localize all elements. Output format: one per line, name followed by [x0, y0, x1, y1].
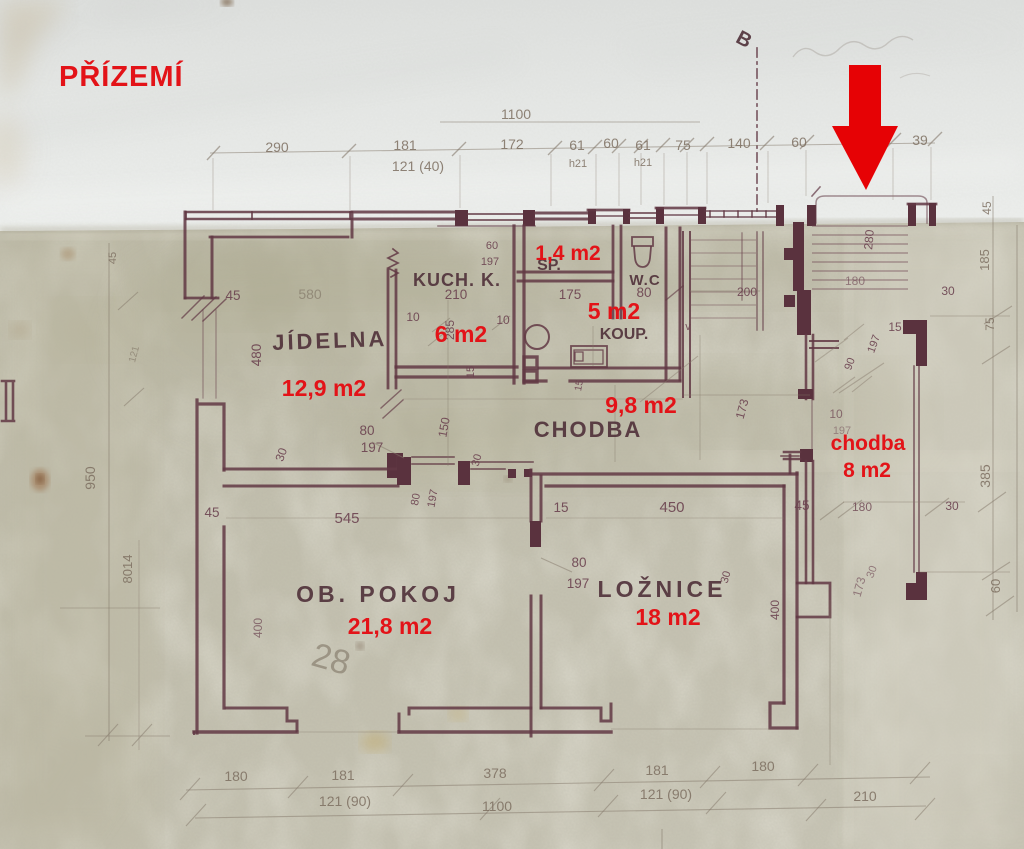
- svg-text:39: 39: [912, 132, 928, 148]
- svg-text:181: 181: [393, 137, 417, 153]
- svg-text:80: 80: [359, 423, 374, 438]
- svg-text:180: 180: [751, 758, 775, 774]
- svg-text:9,8 m2: 9,8 m2: [605, 392, 677, 418]
- svg-text:chodba: chodba: [831, 432, 906, 455]
- svg-text:60: 60: [603, 135, 619, 151]
- svg-text:385: 385: [977, 464, 993, 488]
- svg-text:21,8 m2: 21,8 m2: [348, 613, 432, 639]
- svg-text:61: 61: [635, 137, 651, 153]
- svg-text:CHODBA: CHODBA: [534, 417, 643, 442]
- svg-text:480: 480: [249, 344, 264, 367]
- svg-text:60: 60: [486, 240, 498, 252]
- svg-text:JÍDELNA: JÍDELNA: [272, 326, 388, 355]
- svg-text:200: 200: [737, 285, 757, 299]
- svg-text:180: 180: [224, 768, 248, 784]
- svg-text:61: 61: [569, 137, 585, 153]
- svg-text:30: 30: [941, 284, 955, 298]
- svg-text:45: 45: [980, 201, 994, 215]
- svg-text:400: 400: [251, 618, 265, 638]
- svg-text:PŘÍZEMÍ: PŘÍZEMÍ: [59, 59, 184, 93]
- svg-text:121 (40): 121 (40): [392, 158, 444, 174]
- svg-text:10: 10: [406, 310, 420, 324]
- svg-text:15: 15: [888, 320, 902, 334]
- svg-text:45: 45: [204, 505, 219, 520]
- svg-text:545: 545: [334, 510, 359, 527]
- svg-text:175: 175: [559, 287, 582, 302]
- svg-text:185: 185: [977, 249, 992, 271]
- svg-text:950: 950: [82, 466, 98, 490]
- svg-text:80: 80: [409, 492, 423, 506]
- svg-text:LOŽNICE: LOŽNICE: [598, 575, 727, 602]
- svg-text:75: 75: [983, 317, 997, 331]
- svg-text:197: 197: [361, 440, 384, 455]
- svg-text:12,9 m2: 12,9 m2: [282, 375, 366, 401]
- svg-text:180: 180: [852, 500, 872, 514]
- svg-text:45: 45: [794, 498, 809, 513]
- svg-text:8 m2: 8 m2: [843, 459, 891, 482]
- svg-text:60: 60: [988, 579, 1003, 593]
- svg-text:75: 75: [675, 137, 691, 153]
- svg-text:378: 378: [483, 765, 507, 781]
- svg-text:KUCH. K.: KUCH. K.: [413, 270, 501, 290]
- svg-text:180: 180: [845, 274, 865, 288]
- svg-text:580: 580: [298, 286, 322, 302]
- svg-text:5 m2: 5 m2: [588, 298, 640, 324]
- svg-text:140: 140: [727, 135, 751, 151]
- svg-text:450: 450: [659, 499, 684, 516]
- svg-text:30: 30: [945, 499, 959, 513]
- svg-text:15: 15: [465, 366, 477, 378]
- svg-text:121 (90): 121 (90): [640, 786, 692, 802]
- svg-text:18 m2: 18 m2: [635, 604, 700, 630]
- svg-text:6 m2: 6 m2: [435, 321, 487, 347]
- svg-text:h21: h21: [634, 157, 652, 169]
- svg-text:210: 210: [853, 788, 877, 804]
- svg-text:1,4 m2: 1,4 m2: [535, 242, 600, 265]
- svg-text:1100: 1100: [501, 106, 531, 122]
- svg-text:45: 45: [225, 288, 240, 303]
- svg-text:181: 181: [331, 767, 355, 783]
- svg-text:W.C: W.C: [629, 272, 660, 289]
- svg-text:60: 60: [791, 134, 807, 150]
- svg-text:80: 80: [571, 555, 586, 570]
- svg-text:197: 197: [567, 576, 590, 591]
- svg-text:10: 10: [496, 313, 510, 327]
- svg-text:172: 172: [500, 136, 524, 152]
- svg-text:8014: 8014: [120, 555, 135, 584]
- svg-text:15: 15: [553, 500, 568, 515]
- svg-text:10: 10: [829, 407, 843, 421]
- svg-text:KOUP.: KOUP.: [600, 326, 649, 343]
- svg-text:197: 197: [481, 256, 499, 268]
- svg-text:OB. POKOJ: OB. POKOJ: [296, 581, 460, 607]
- svg-text:h21: h21: [569, 158, 587, 170]
- svg-text:400: 400: [768, 600, 782, 620]
- svg-text:1100: 1100: [482, 798, 512, 814]
- svg-text:121 (90): 121 (90): [319, 793, 371, 809]
- svg-text:290: 290: [265, 139, 289, 155]
- svg-text:v: v: [685, 321, 691, 333]
- svg-text:280: 280: [861, 229, 877, 250]
- svg-text:45: 45: [107, 252, 119, 264]
- svg-text:181: 181: [645, 762, 669, 778]
